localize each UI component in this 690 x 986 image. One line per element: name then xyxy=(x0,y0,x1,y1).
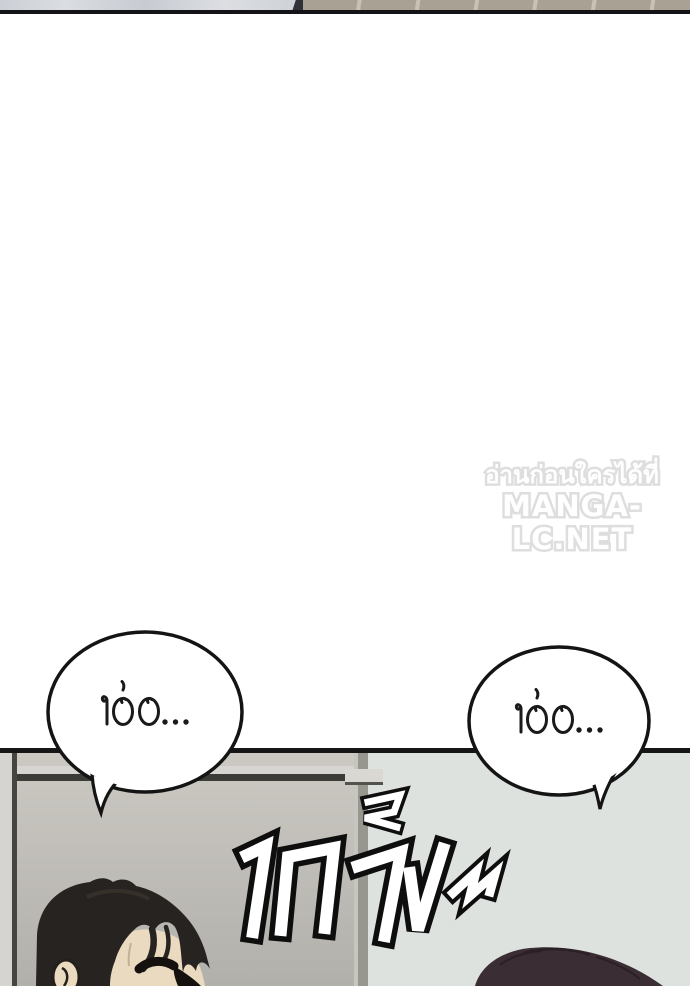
top-strip-border xyxy=(0,10,690,14)
watermark-thai-line: อ่านก่อนใครได้ที่ xyxy=(454,461,690,490)
left-wall-corner-line xyxy=(12,753,17,986)
speech-bubble-right xyxy=(455,640,660,825)
manga-page: อ่านก่อนใครได้ที่ MANGA-LC.NET xyxy=(0,0,690,986)
character-plum-hair-head xyxy=(474,946,664,986)
character-man-head xyxy=(35,875,235,986)
plum-hair xyxy=(475,947,663,986)
watermark-site-name: MANGA-LC.NET xyxy=(454,490,690,556)
speech-bubble-left xyxy=(38,620,253,822)
watermark: อ่านก่อนใครได้ที่ MANGA-LC.NET xyxy=(454,461,690,556)
left-wall-edge xyxy=(0,753,12,986)
